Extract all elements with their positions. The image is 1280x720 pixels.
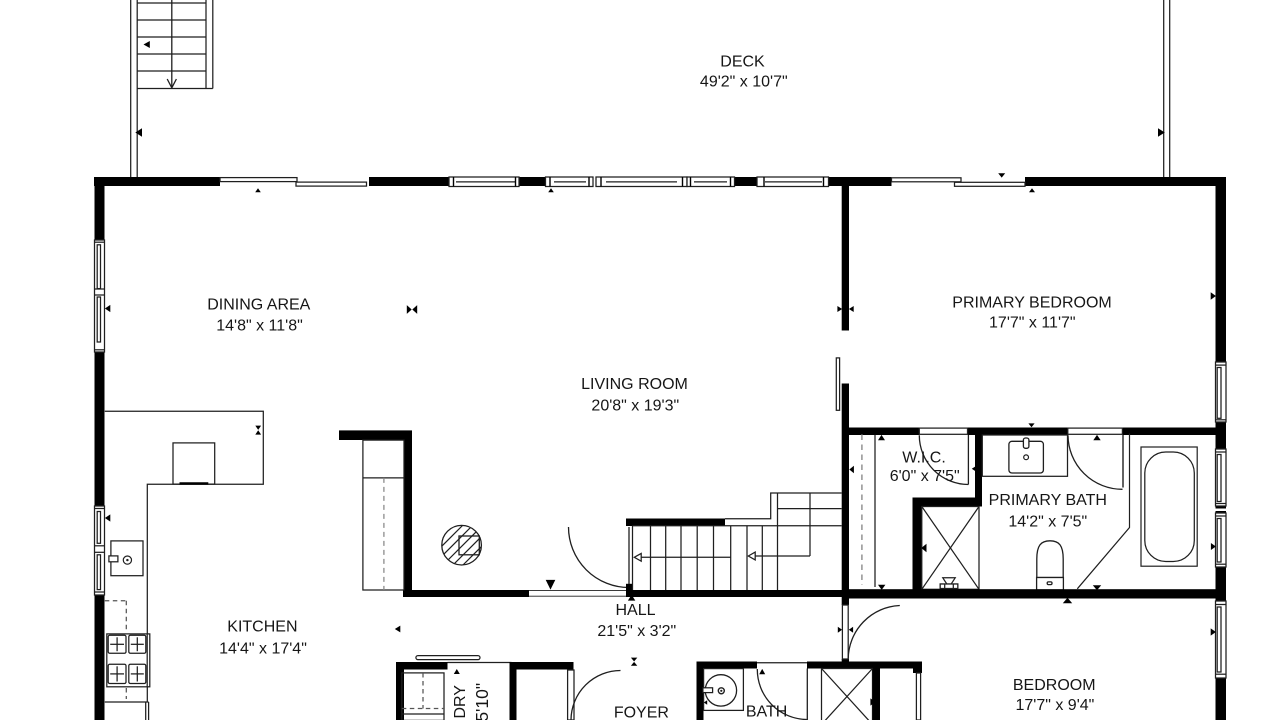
svg-text:FOYER: FOYER: [614, 705, 669, 720]
svg-text:DECK: DECK: [720, 54, 765, 71]
svg-text:PRIMARY BEDROOM: PRIMARY BEDROOM: [952, 295, 1111, 312]
svg-text:PRIMARY BATH: PRIMARY BATH: [989, 492, 1107, 509]
svg-text:BEDROOM: BEDROOM: [1013, 677, 1096, 694]
svg-text:HALL: HALL: [615, 602, 655, 619]
svg-text:DRY: DRY: [452, 685, 469, 719]
svg-text:LIVING ROOM: LIVING ROOM: [581, 376, 688, 393]
svg-text:14'4" x 17'4": 14'4" x 17'4": [219, 641, 307, 658]
svg-text:21'5" x 3'2": 21'5" x 3'2": [597, 623, 676, 640]
svg-text:17'7" x 9'4": 17'7" x 9'4": [1015, 697, 1094, 714]
svg-text:5'10": 5'10": [472, 683, 492, 720]
svg-text:49'2" x 10'7": 49'2" x 10'7": [700, 74, 788, 91]
svg-text:14'2" x 7'5": 14'2" x 7'5": [1008, 514, 1087, 531]
svg-text:6'0" x 7'5": 6'0" x 7'5": [890, 468, 960, 485]
svg-text:W.I.C.: W.I.C.: [902, 450, 946, 467]
svg-text:20'8" x 19'3": 20'8" x 19'3": [591, 397, 679, 414]
svg-text:17'7" x 11'7": 17'7" x 11'7": [989, 315, 1076, 332]
svg-text:KITCHEN: KITCHEN: [227, 619, 297, 636]
svg-text:14'8" x 11'8": 14'8" x 11'8": [216, 318, 303, 335]
svg-text:DINING AREA: DINING AREA: [207, 297, 310, 314]
svg-text:BATH: BATH: [746, 703, 787, 720]
